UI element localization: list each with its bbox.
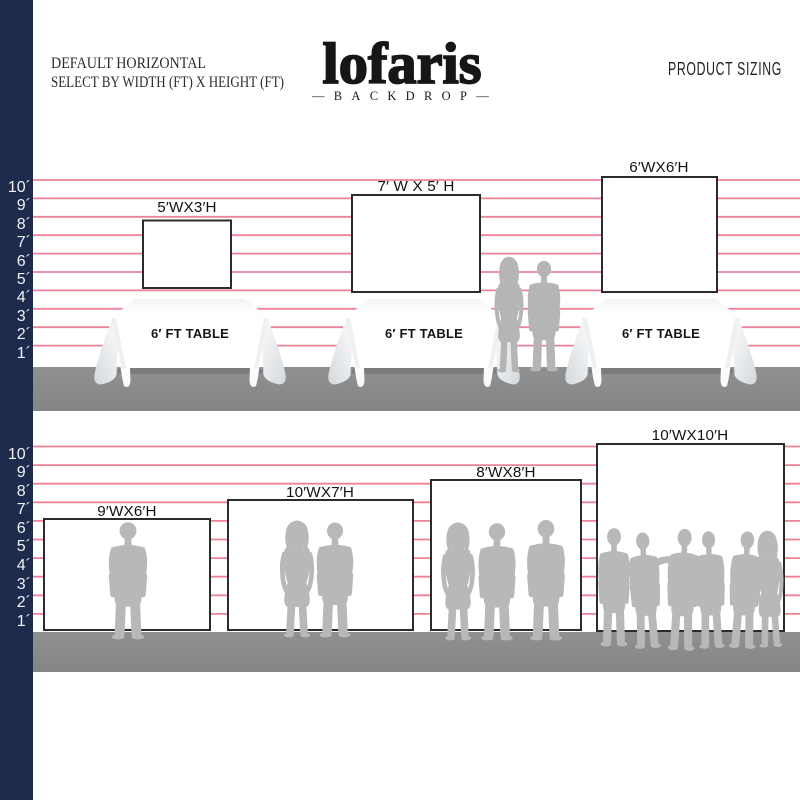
svg-text:—BACKDROP—: —BACKDROP— <box>311 89 498 103</box>
svg-text:6´: 6´ <box>17 520 31 537</box>
svg-text:2´: 2´ <box>17 594 31 611</box>
svg-text:10´: 10´ <box>8 179 31 196</box>
svg-text:8′WX8′H: 8′WX8′H <box>476 464 535 481</box>
svg-text:DEFAULT HORIZONTAL: DEFAULT HORIZONTAL <box>51 55 206 72</box>
svg-text:2´: 2´ <box>17 326 31 343</box>
svg-text:3´: 3´ <box>17 576 31 593</box>
svg-text:9´: 9´ <box>17 464 31 481</box>
svg-text:7′ W X 5′ H: 7′ W X 5′ H <box>377 178 454 195</box>
svg-text:3´: 3´ <box>17 308 31 325</box>
svg-text:5´: 5´ <box>17 538 31 555</box>
svg-text:SELECT BY WIDTH (FT) X HEIGHT: SELECT BY WIDTH (FT) X HEIGHT (FT) <box>51 74 284 91</box>
svg-text:9´: 9´ <box>17 197 31 214</box>
svg-text:9′WX6′H: 9′WX6′H <box>97 503 156 520</box>
svg-text:1´: 1´ <box>17 613 31 630</box>
svg-text:1´: 1´ <box>17 345 31 362</box>
svg-text:5´: 5´ <box>17 271 31 288</box>
svg-text:8´: 8´ <box>17 483 31 500</box>
svg-text:7´: 7´ <box>17 501 31 518</box>
svg-text:10′WX10′H: 10′WX10′H <box>652 427 729 444</box>
svg-text:7´: 7´ <box>17 234 31 251</box>
svg-text:10´: 10´ <box>8 446 31 463</box>
svg-text:8´: 8´ <box>17 216 31 233</box>
svg-text:4´: 4´ <box>17 289 31 306</box>
svg-text:lofaris: lofaris <box>323 31 482 96</box>
svg-text:6′WX6′H: 6′WX6′H <box>629 159 688 176</box>
svg-text:PRODUCT SIZING: PRODUCT SIZING <box>668 58 782 79</box>
svg-text:10′WX7′H: 10′WX7′H <box>286 484 354 501</box>
svg-text:6´: 6´ <box>17 253 31 270</box>
svg-text:4´: 4´ <box>17 557 31 574</box>
svg-text:5′WX3′H: 5′WX3′H <box>157 199 216 216</box>
